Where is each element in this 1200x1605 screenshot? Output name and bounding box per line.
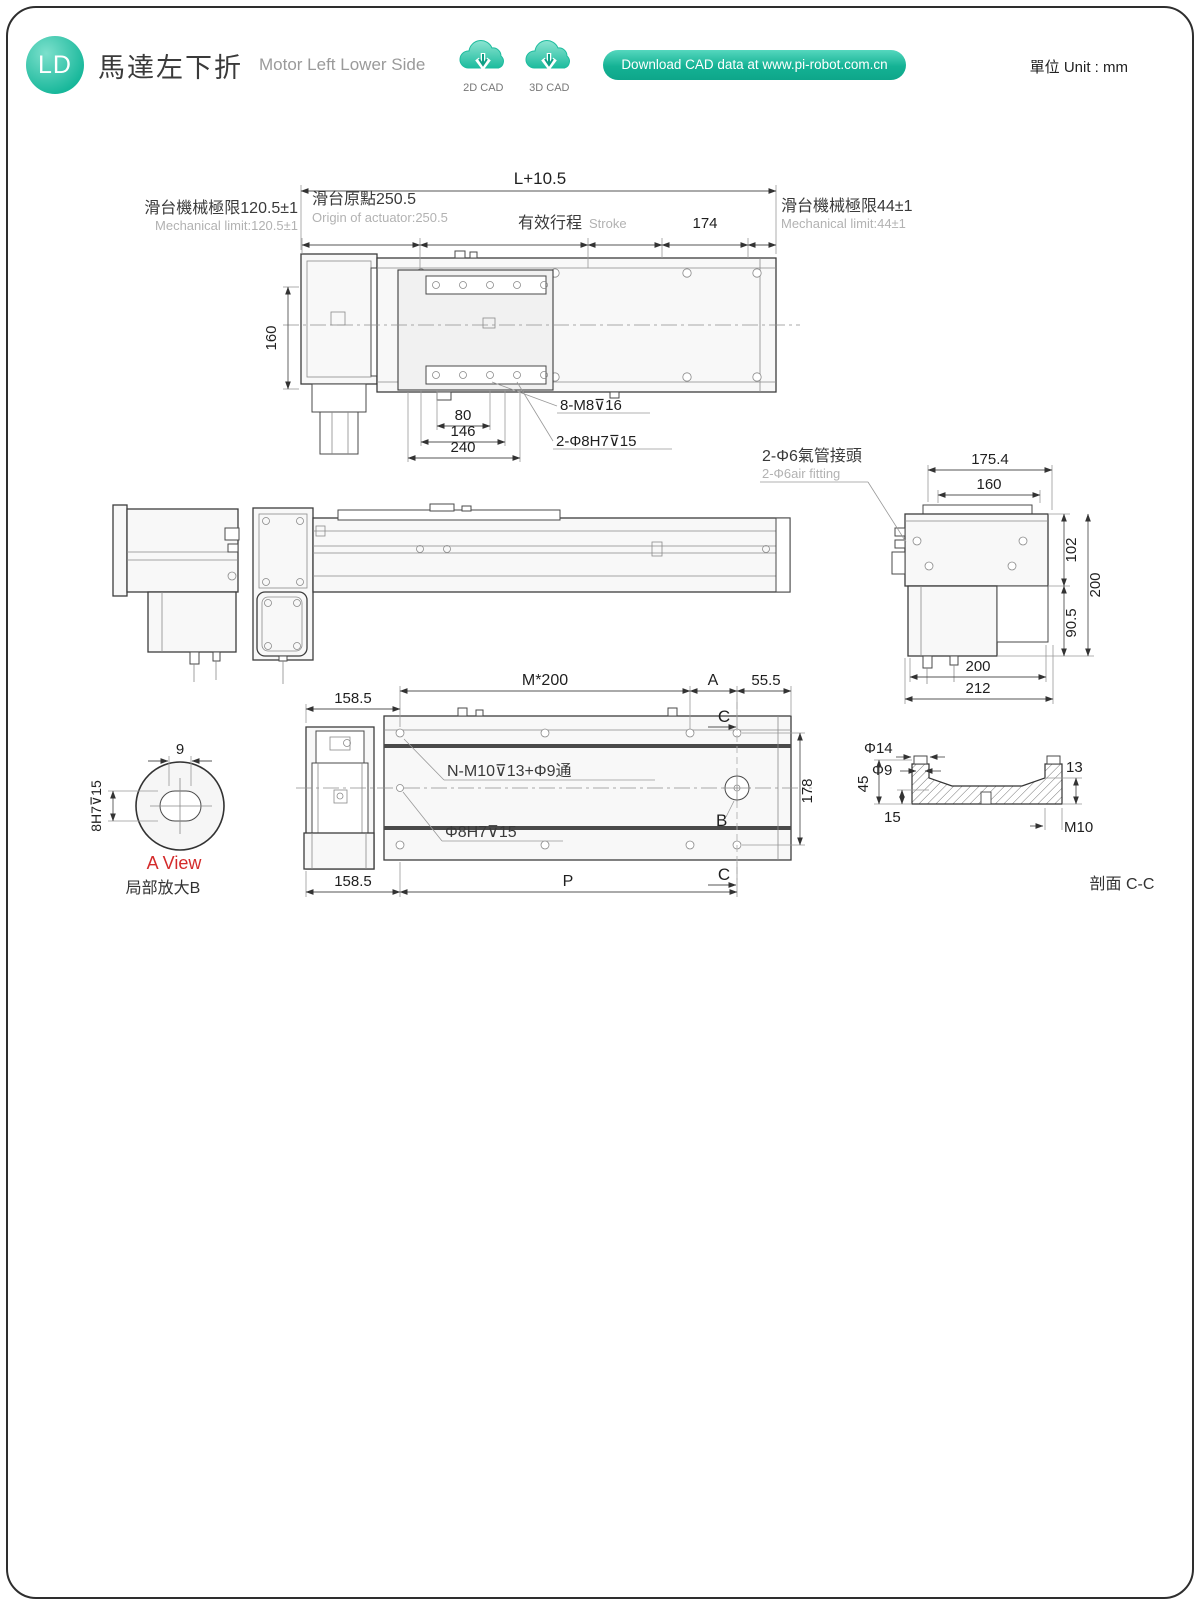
a-view-title: A View [147, 853, 203, 873]
label-c-bottom: C [718, 865, 730, 884]
stroke-zh: 有效行程 [518, 214, 582, 232]
dim-200-bottom: 200 [965, 658, 990, 675]
2d-cad-download[interactable]: 2D CAD [457, 37, 509, 94]
cloud-download-icon [523, 37, 575, 79]
dim-8h7: 8H7⊽15 [88, 780, 104, 832]
unit-label: 單位 Unit : mm [1030, 56, 1128, 77]
dim-158-5-bottom: 158.5 [334, 873, 372, 890]
label-a: A [708, 672, 719, 689]
page-title-zh: 馬達左下折 [98, 46, 243, 85]
dim-9: 9 [176, 741, 184, 758]
dim-212: 212 [965, 680, 990, 697]
dim-158-5-top: 158.5 [334, 690, 372, 707]
2d-cad-label: 2D CAD [457, 82, 509, 94]
dim-phi9: Φ9 [872, 762, 892, 779]
dim-240: 240 [450, 439, 475, 456]
label-phi8: Φ8H7⊽15 [445, 824, 517, 841]
dim-45: 45 [855, 776, 872, 793]
dim-90-5: 90.5 [1063, 608, 1080, 637]
dim-15: 15 [884, 809, 901, 826]
mech-limit-left-en: Mechanical limit:120.5±1 [155, 218, 298, 233]
label-dowel-pins: 2-Φ8H7⊽15 [556, 433, 637, 450]
dim-m10: M10 [1064, 819, 1093, 836]
dim-146: 146 [450, 423, 475, 440]
origin-zh: 滑台原點250.5 [312, 190, 416, 208]
label-nm10: N-M10⊽13+Φ9通 [447, 762, 572, 780]
page-header: LD 馬達左下折 Motor Left Lower Side 2D CAD 3D… [26, 36, 906, 94]
3d-cad-download[interactable]: 3D CAD [523, 37, 575, 94]
mech-limit-right-en: Mechanical limit:44±1 [781, 216, 906, 231]
stroke-en: Stroke [589, 216, 627, 231]
dim-13: 13 [1066, 759, 1083, 776]
dim-phi14: Φ14 [864, 740, 893, 757]
dim-178: 178 [799, 778, 816, 803]
air-fitting-zh: 2-Φ6氣管接頭 [762, 447, 862, 465]
dim-55-5: 55.5 [751, 672, 780, 689]
label-b: B [716, 811, 727, 830]
technical-drawing: L+10.5 滑台機械極限120.5±1 Mechanical limit:12… [0, 140, 1200, 1020]
dim-174: 174 [692, 215, 717, 232]
series-badge: LD [26, 36, 84, 94]
a-view-detail: 9 8H7⊽15 A View 局部放大B [88, 741, 224, 897]
air-fitting-en: 2-Φ6air fitting [762, 466, 840, 481]
mech-limit-right-zh: 滑台機械極限44±1 [781, 197, 913, 215]
3d-cad-label: 3D CAD [523, 82, 575, 94]
download-cad-button[interactable]: Download CAD data at www.pi-robot.com.cn [603, 50, 905, 80]
dim-160-top: 160 [976, 476, 1001, 493]
cloud-download-icon [457, 37, 509, 79]
top-view-linework [283, 251, 800, 454]
origin-en: Origin of actuator:250.5 [312, 210, 448, 225]
section-cc-title: 剖面 C-C [1090, 875, 1155, 893]
cad-download-icons: 2D CAD 3D CAD [457, 37, 575, 94]
page-title-en: Motor Left Lower Side [259, 55, 425, 75]
front-view-linework [253, 504, 790, 684]
bottom-view-linework [296, 702, 812, 880]
dim-200-right: 200 [1087, 572, 1104, 597]
section-cc-detail: Φ14 Φ9 45 15 13 M10 剖面 C-C [855, 740, 1154, 893]
dim-175-4: 175.4 [971, 451, 1009, 468]
dim-m200: M*200 [522, 672, 568, 689]
a-view-subtitle: 局部放大B [126, 879, 201, 897]
label-mounting-screws: 8-M8⊽16 [560, 397, 622, 414]
label-c-top: C [718, 707, 730, 726]
mech-limit-left-zh: 滑台機械極限120.5±1 [144, 199, 298, 217]
dim-p: P [563, 873, 574, 890]
dim-160-vertical: 160 [263, 325, 280, 350]
end-view-linework [113, 505, 239, 682]
dim-102: 102 [1063, 537, 1080, 562]
dim-80: 80 [455, 407, 472, 424]
dim-overall-length: L+10.5 [514, 169, 566, 188]
